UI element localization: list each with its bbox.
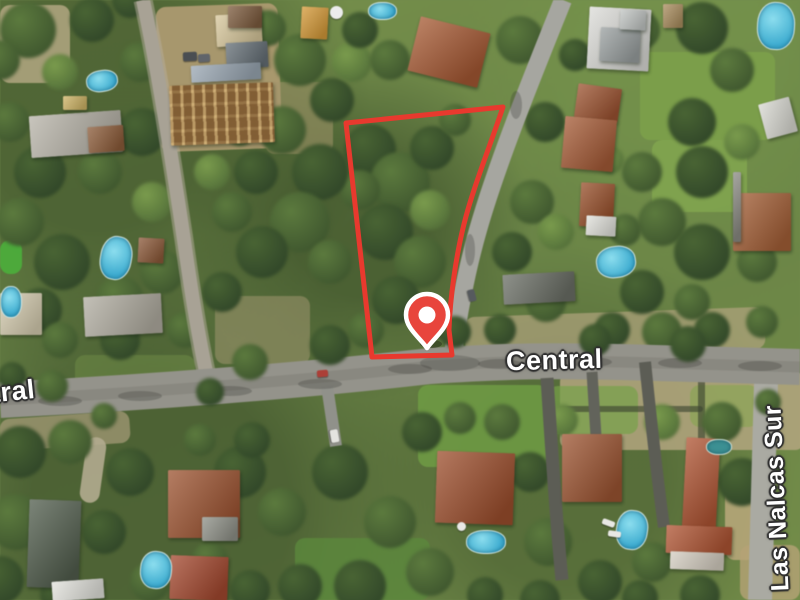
- street-label-central: Central: [506, 344, 603, 378]
- location-pin-icon[interactable]: [406, 294, 448, 348]
- overlay-layer: [0, 0, 800, 600]
- satellite-map[interactable]: Central Central Las Nalcas Sur: [0, 0, 800, 600]
- pin-hole: [419, 307, 436, 324]
